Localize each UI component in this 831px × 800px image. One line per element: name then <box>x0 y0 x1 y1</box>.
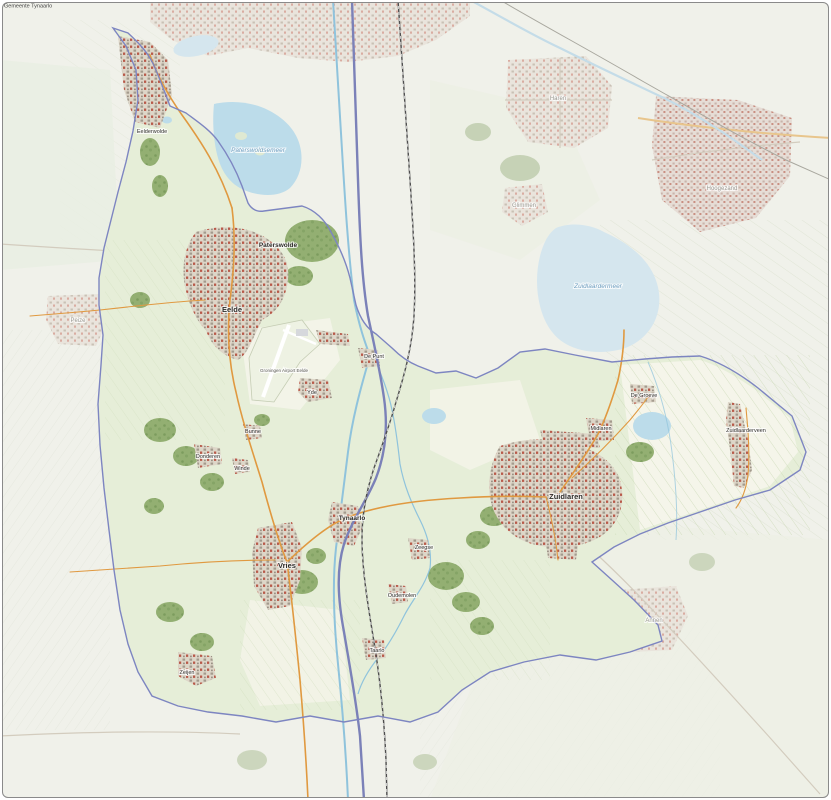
map-title: Gemeente Tynaarlo <box>4 4 52 10</box>
place-label-peize: Peize <box>70 318 86 324</box>
topographic-map: EelderwoldePaterswoldeEeldeYdeDe PuntBun… <box>0 0 831 800</box>
place-label-hoogezand: Hoogezand <box>707 186 738 192</box>
place-label-taarlo: Taarlo <box>370 648 385 654</box>
place-label-bunne: Bunne <box>245 429 261 435</box>
place-label-eelderwolde: Eelderwolde <box>137 129 167 135</box>
place-label-annen: Annen <box>645 618 662 624</box>
apron <box>296 329 308 336</box>
place-label-vries: Vries <box>278 561 296 570</box>
place-label-glimmen: Glimmen <box>512 203 536 209</box>
place-label-eelde: Eelde <box>222 305 242 314</box>
place-label-zeegse: Zeegse <box>415 545 433 551</box>
place-label-zuidlaarderveen: Zuidlaarderveen <box>726 428 766 434</box>
water-label-zuidlaardermeer: Zuidlaardermeer <box>573 283 623 290</box>
place-label-tynaarlo: Tynaarlo <box>339 515 366 522</box>
place-label-oudemolen: Oudemolen <box>388 593 416 599</box>
place-label-donderen: Donderen <box>196 454 220 460</box>
place-label-midlaren: Midlaren <box>590 426 611 432</box>
place-label-de-groeve: De Groeve <box>631 393 658 399</box>
place-label-haren: Haren <box>550 96 566 102</box>
place-label-paterswolde: Paterswolde <box>259 242 298 249</box>
place-label-zeijen: Zeijen <box>180 670 195 676</box>
water-label-paterswoldsemeer: Paterswoldsemeer <box>231 147 286 154</box>
map-frame: EelderwoldePaterswoldeEeldeYdeDe PuntBun… <box>0 0 831 800</box>
place-label-yde: Yde <box>307 390 317 396</box>
place-label-de-punt: De Punt <box>364 354 384 360</box>
place-label-winde: Winde <box>234 466 250 472</box>
place-label-groningen-airport-eelde: Groningen Airport Eelde <box>260 368 309 373</box>
place-label-zuidlaren: Zuidlaren <box>549 492 583 501</box>
